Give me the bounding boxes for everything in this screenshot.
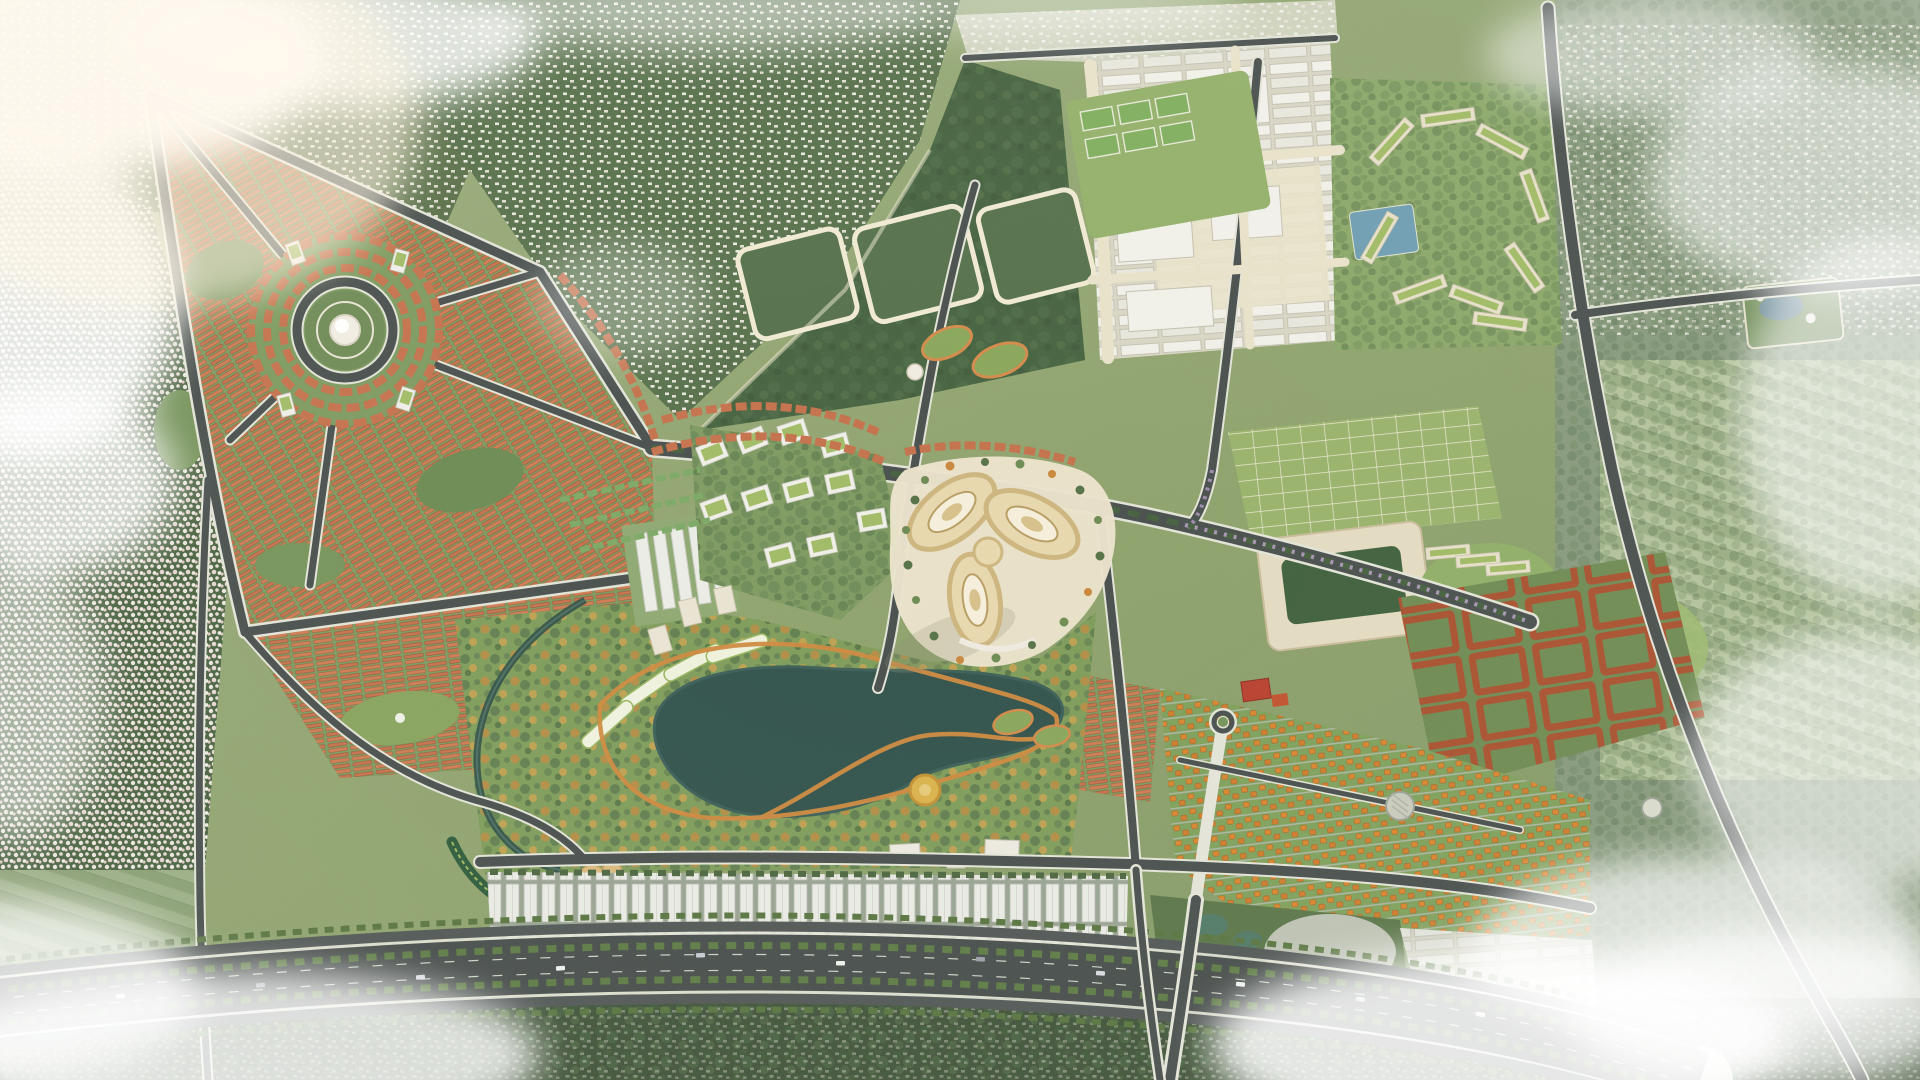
- aerial-masterplan-rendering: [0, 0, 1920, 1080]
- screenshot-root: [0, 0, 1920, 1080]
- grain-overlay: [0, 0, 1920, 1080]
